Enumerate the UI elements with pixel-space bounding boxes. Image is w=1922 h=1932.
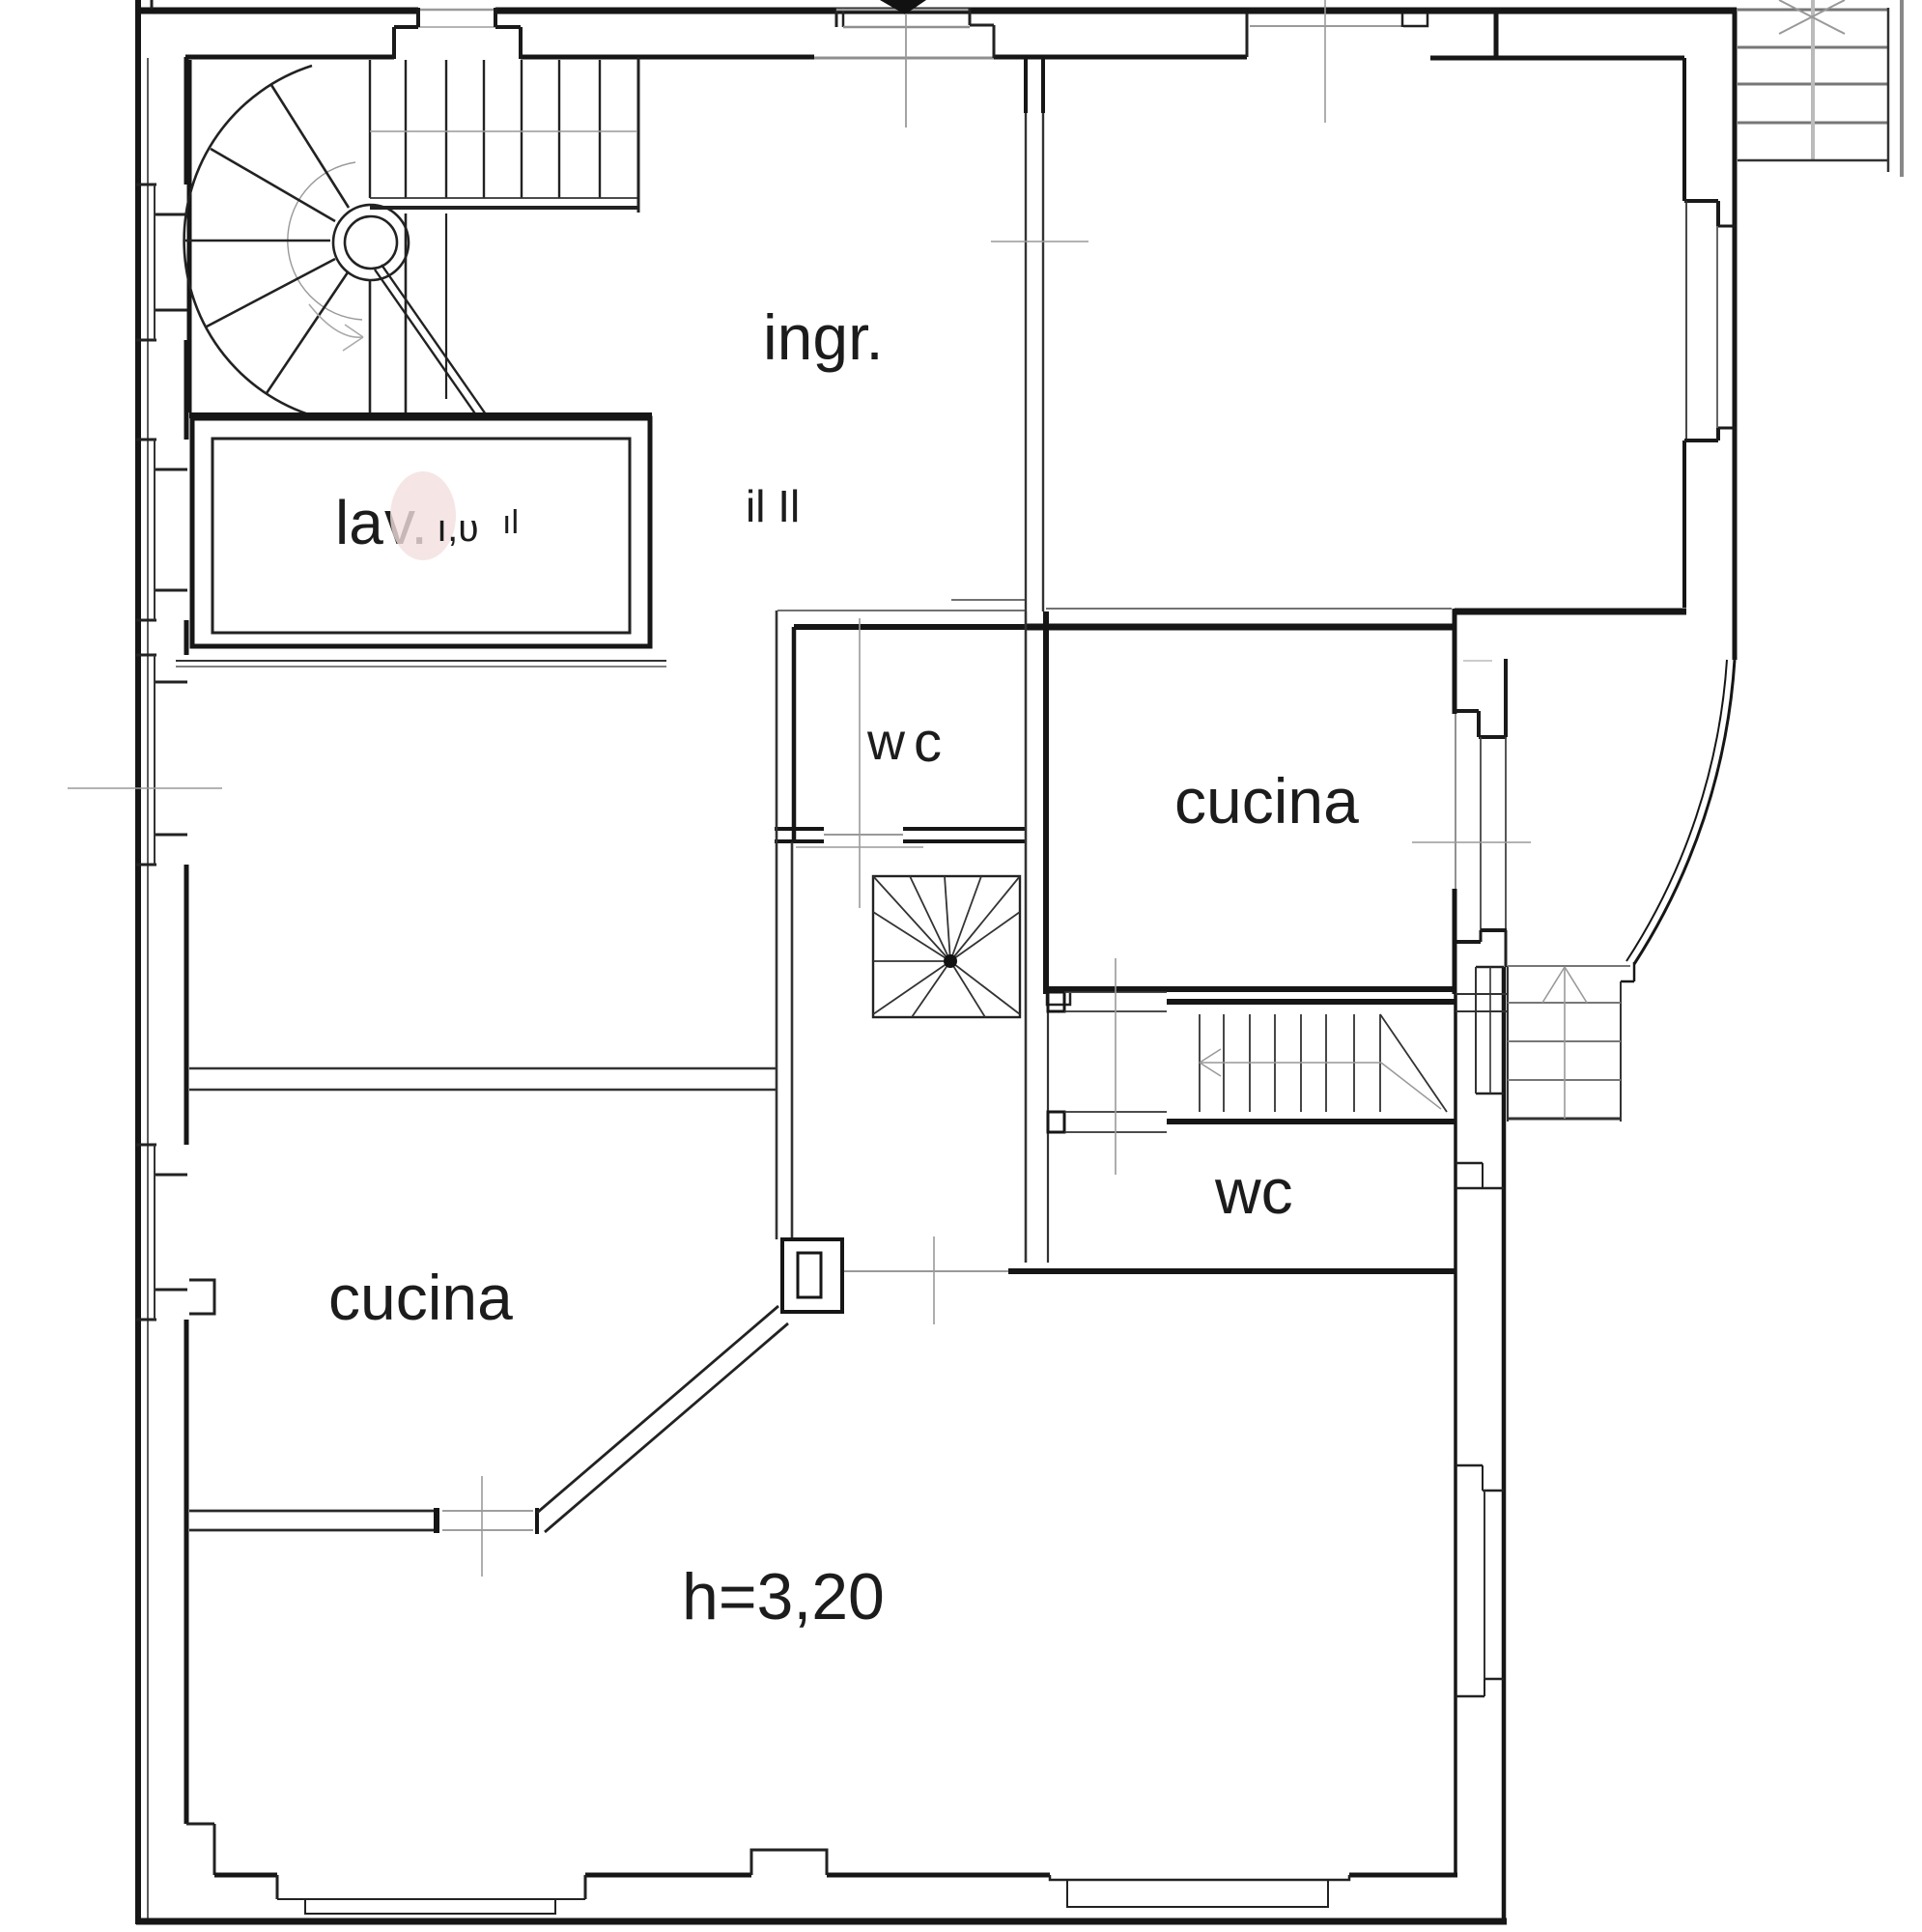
svg-text:c: c xyxy=(914,711,942,774)
svg-text:cucina: cucina xyxy=(328,1262,513,1333)
svg-text:la: la xyxy=(335,488,383,557)
svg-text:il Il: il Il xyxy=(746,481,800,531)
svg-text:cucina: cucina xyxy=(1174,765,1359,837)
svg-text:ingr.: ingr. xyxy=(763,301,884,373)
svg-text:ıl: ıl xyxy=(502,504,519,541)
svg-text:h=3,20: h=3,20 xyxy=(682,1560,885,1634)
svg-text:w: w xyxy=(866,713,906,771)
svg-text:wc: wc xyxy=(1214,1155,1293,1227)
svg-text:ı,ʋ: ı,ʋ xyxy=(437,507,479,550)
